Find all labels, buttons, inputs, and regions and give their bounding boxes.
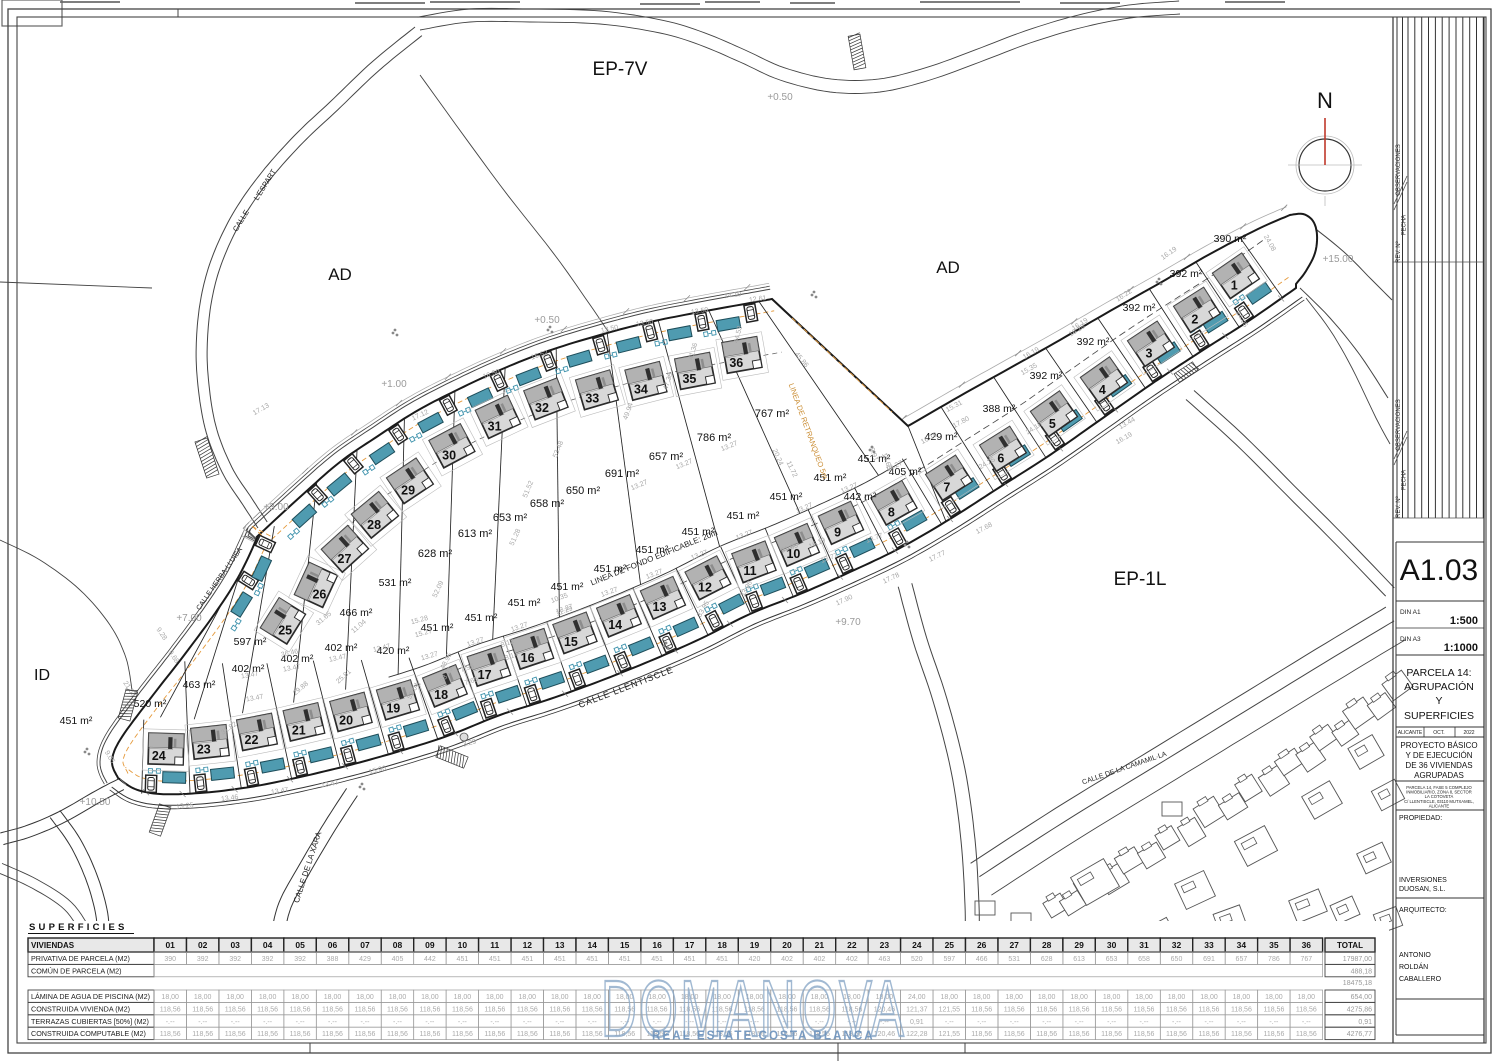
svg-text:-.--: -.--: [555, 1019, 565, 1026]
svg-text:118,56: 118,56: [322, 1006, 343, 1013]
svg-text:-.--: -.--: [328, 1019, 338, 1026]
svg-text:118,56: 118,56: [1166, 1031, 1187, 1038]
svg-text:21: 21: [292, 723, 306, 737]
svg-text:691: 691: [1203, 956, 1215, 963]
svg-text:21: 21: [815, 940, 825, 950]
svg-text:767: 767: [1300, 956, 1312, 963]
svg-text:118,56: 118,56: [1101, 1031, 1122, 1038]
svg-text:EP-7V: EP-7V: [593, 59, 648, 80]
svg-text:-.--: -.--: [1237, 1019, 1247, 1026]
svg-text:613 m²: 613 m²: [458, 528, 493, 540]
svg-text:402: 402: [814, 956, 826, 963]
svg-text:597: 597: [943, 956, 955, 963]
svg-text:PROYECTO BÁSICO: PROYECTO BÁSICO: [1400, 741, 1477, 750]
svg-text:402: 402: [781, 956, 793, 963]
svg-text:18,00: 18,00: [389, 994, 407, 1001]
svg-text:TOTAL: TOTAL: [1337, 941, 1363, 950]
svg-text:118,56: 118,56: [1069, 1006, 1090, 1013]
svg-text:25: 25: [278, 624, 292, 638]
svg-text:18,00: 18,00: [551, 994, 569, 1001]
svg-text:4276,77: 4276,77: [1347, 1031, 1372, 1038]
svg-text:29: 29: [401, 484, 415, 498]
svg-text:CABALLERO: CABALLERO: [1399, 976, 1442, 983]
svg-text:24: 24: [912, 940, 922, 950]
svg-text:420: 420: [749, 956, 761, 963]
svg-text:DIN A3: DIN A3: [1400, 636, 1421, 643]
svg-text:-.--: -.--: [361, 1019, 371, 1026]
svg-text:24: 24: [152, 749, 166, 763]
svg-text:32: 32: [535, 401, 549, 415]
svg-text:VIVIENDAS: VIVIENDAS: [31, 941, 75, 950]
svg-text:118,56: 118,56: [1004, 1006, 1025, 1013]
svg-text:-.--: -.--: [1172, 1019, 1182, 1026]
svg-text:463 m²: 463 m²: [183, 679, 216, 691]
svg-text:ARQUITECTO:: ARQUITECTO:: [1399, 907, 1447, 914]
svg-text:12: 12: [698, 580, 712, 594]
svg-text:392: 392: [262, 956, 274, 963]
svg-text:CONSTRUIDA VIVIENDA (M2): CONSTRUIDA VIVIENDA (M2): [31, 1004, 130, 1013]
svg-text:390 m²: 390 m²: [1214, 233, 1247, 245]
svg-text:118,56: 118,56: [225, 1031, 246, 1038]
svg-text:2: 2: [1191, 313, 1198, 327]
svg-text:392: 392: [197, 956, 209, 963]
svg-text:118,56: 118,56: [452, 1031, 473, 1038]
svg-text:09: 09: [425, 940, 435, 950]
svg-text:463: 463: [879, 956, 891, 963]
svg-text:REV. Nº: REV. Nº: [1395, 495, 1402, 517]
svg-text:18,00: 18,00: [1233, 994, 1251, 1001]
svg-text:18475,18: 18475,18: [1343, 980, 1372, 987]
svg-text:653 m²: 653 m²: [493, 512, 528, 524]
svg-text:18,00: 18,00: [324, 994, 342, 1001]
svg-text:442: 442: [424, 956, 436, 963]
svg-text:18,00: 18,00: [583, 994, 601, 1001]
svg-text:-.--: -.--: [945, 1019, 955, 1026]
svg-text:-.--: -.--: [263, 1019, 273, 1026]
svg-text:118,56: 118,56: [1134, 1006, 1155, 1013]
svg-text:451: 451: [684, 956, 696, 963]
svg-text:SUPERFICIES: SUPERFICIES: [1404, 710, 1474, 722]
svg-text:691 m²: 691 m²: [605, 468, 640, 480]
svg-text:-.--: -.--: [1010, 1019, 1020, 1026]
svg-text:PARCELA 14:: PARCELA 14:: [1406, 667, 1471, 679]
svg-text:Y: Y: [1435, 695, 1442, 707]
svg-text:451: 451: [554, 956, 566, 963]
svg-text:DIN A1: DIN A1: [1400, 609, 1421, 616]
svg-text:392 m²: 392 m²: [1030, 370, 1063, 382]
svg-text:REV. Nº: REV. Nº: [1395, 240, 1402, 262]
svg-text:118,56: 118,56: [1263, 1031, 1284, 1038]
svg-text:118,56: 118,56: [971, 1006, 992, 1013]
svg-text:COMÚN DE PARCELA (M2): COMÚN DE PARCELA (M2): [31, 966, 122, 975]
svg-text:27: 27: [338, 552, 352, 566]
svg-text:11: 11: [743, 564, 756, 578]
svg-text:18,00: 18,00: [1168, 994, 1186, 1001]
svg-text:22: 22: [245, 733, 259, 747]
svg-text:FECHA: FECHA: [1402, 215, 1408, 235]
svg-text:392 m²: 392 m²: [1123, 302, 1156, 314]
svg-text:31: 31: [488, 419, 502, 433]
svg-text:+0.50: +0.50: [534, 315, 560, 326]
svg-text:+10.50: +10.50: [80, 797, 111, 808]
svg-text:451 m²: 451 m²: [727, 510, 760, 522]
svg-text:31: 31: [1139, 940, 1149, 950]
svg-text:118,56: 118,56: [517, 1006, 538, 1013]
svg-text:30: 30: [1107, 940, 1117, 950]
svg-text:12: 12: [523, 940, 533, 950]
svg-text:-.--: -.--: [1075, 1019, 1085, 1026]
svg-text:16: 16: [652, 940, 662, 950]
svg-text:118,56: 118,56: [484, 1006, 505, 1013]
svg-text:392 m²: 392 m²: [1170, 268, 1203, 280]
svg-text:531 m²: 531 m²: [379, 577, 412, 589]
svg-text:18: 18: [434, 688, 448, 702]
svg-text:-.--: -.--: [1107, 1019, 1117, 1026]
svg-text:118,56: 118,56: [1199, 1006, 1220, 1013]
svg-text:628 m²: 628 m²: [418, 548, 453, 560]
svg-text:118,56: 118,56: [192, 1006, 213, 1013]
svg-text:27: 27: [1009, 940, 1019, 950]
svg-text:451: 451: [651, 956, 663, 963]
svg-text:786 m²: 786 m²: [697, 432, 732, 444]
svg-text:N: N: [1317, 88, 1333, 113]
svg-text:18,00: 18,00: [259, 994, 277, 1001]
svg-text:11: 11: [490, 940, 499, 950]
svg-text:451: 451: [586, 956, 598, 963]
svg-text:19: 19: [750, 940, 760, 950]
svg-text:34: 34: [1237, 940, 1247, 950]
svg-text:19: 19: [386, 702, 400, 716]
svg-text:657 m²: 657 m²: [649, 451, 684, 463]
svg-text:06: 06: [328, 940, 338, 950]
svg-text:118,56: 118,56: [582, 1006, 603, 1013]
svg-text:ALICANTE: ALICANTE: [1398, 730, 1423, 736]
svg-text:118,56: 118,56: [452, 1006, 473, 1013]
svg-text:35: 35: [1269, 940, 1279, 950]
svg-text:8: 8: [888, 506, 895, 520]
svg-text:+3.00: +3.00: [263, 502, 289, 513]
svg-text:118,56: 118,56: [1296, 1031, 1317, 1038]
svg-text:18,00: 18,00: [486, 994, 504, 1001]
svg-text:18,00: 18,00: [941, 994, 959, 1001]
svg-text:118,56: 118,56: [419, 1006, 440, 1013]
svg-text:118,56: 118,56: [1036, 1006, 1057, 1013]
svg-text:25: 25: [945, 940, 955, 950]
svg-text:488,18: 488,18: [1351, 968, 1373, 975]
svg-text:118,56: 118,56: [1036, 1031, 1057, 1038]
svg-text:653: 653: [1106, 956, 1118, 963]
svg-text:-.--: -.--: [393, 1019, 403, 1026]
svg-text:451: 451: [457, 956, 469, 963]
svg-text:08: 08: [393, 940, 403, 950]
svg-text:118,56: 118,56: [257, 1031, 278, 1038]
svg-text:PRIVATIVA DE PARCELA (M2): PRIVATIVA DE PARCELA (M2): [31, 954, 130, 963]
svg-text:118,56: 118,56: [419, 1031, 440, 1038]
svg-text:17: 17: [478, 668, 492, 682]
svg-text:10: 10: [458, 940, 468, 950]
svg-text:+15.00: +15.00: [1323, 254, 1354, 265]
svg-text:118,56: 118,56: [1231, 1031, 1252, 1038]
svg-text:REAL ESTATE COSTA BLANCA: REAL ESTATE COSTA BLANCA: [652, 1028, 875, 1042]
svg-text:02: 02: [198, 940, 208, 950]
svg-text:30: 30: [442, 449, 456, 463]
svg-text:INVERSIONES: INVERSIONES: [1399, 877, 1447, 884]
svg-text:32: 32: [1172, 940, 1182, 950]
svg-text:118,56: 118,56: [322, 1031, 343, 1038]
svg-text:392: 392: [229, 956, 241, 963]
svg-text:-.--: -.--: [977, 1019, 987, 1026]
svg-text:451 m²: 451 m²: [508, 597, 541, 609]
svg-text:OCT.: OCT.: [1433, 730, 1444, 736]
svg-text:18,00: 18,00: [291, 994, 309, 1001]
svg-text:-.--: -.--: [425, 1019, 435, 1026]
svg-text:-.--: -.--: [1140, 1019, 1150, 1026]
svg-text:18,00: 18,00: [226, 994, 244, 1001]
svg-text:18,00: 18,00: [973, 994, 991, 1001]
svg-text:Y DE EJECUCIÓN: Y DE EJECUCIÓN: [1406, 751, 1473, 760]
svg-text:451 m²: 451 m²: [60, 715, 93, 727]
svg-text:388 m²: 388 m²: [983, 403, 1016, 415]
svg-text:18,00: 18,00: [194, 994, 212, 1001]
svg-text:18: 18: [717, 940, 727, 950]
svg-text:23: 23: [197, 743, 211, 757]
svg-text:121,37: 121,37: [906, 1006, 928, 1013]
svg-text:SUPERFICIES: SUPERFICIES: [29, 922, 128, 933]
svg-text:118,56: 118,56: [1069, 1031, 1090, 1038]
svg-text:-.--: -.--: [588, 1019, 598, 1026]
svg-text:26: 26: [312, 587, 326, 601]
svg-text:-.--: -.--: [296, 1019, 306, 1026]
svg-text:451: 451: [489, 956, 501, 963]
svg-text:7: 7: [943, 481, 950, 495]
svg-text:1: 1: [1231, 279, 1238, 293]
svg-text:07: 07: [360, 940, 370, 950]
svg-text:118,56: 118,56: [1134, 1031, 1155, 1038]
svg-text:29: 29: [1074, 940, 1084, 950]
svg-text:-.--: -.--: [458, 1019, 468, 1026]
svg-text:-.--: -.--: [1269, 1019, 1279, 1026]
svg-text:121,55: 121,55: [939, 1006, 961, 1013]
svg-text:628: 628: [1041, 956, 1053, 963]
svg-text:442 m²: 442 m²: [844, 491, 877, 503]
svg-text:-.--: -.--: [1042, 1019, 1052, 1026]
svg-text:18,00: 18,00: [161, 994, 179, 1001]
svg-text:15: 15: [620, 940, 630, 950]
svg-text:451: 451: [521, 956, 533, 963]
svg-text:-.--: -.--: [231, 1019, 241, 1026]
svg-text:392: 392: [294, 956, 306, 963]
svg-text:429: 429: [359, 956, 371, 963]
svg-text:20: 20: [782, 940, 792, 950]
svg-text:20: 20: [339, 714, 353, 728]
svg-text:118,56: 118,56: [290, 1006, 311, 1013]
svg-text:16: 16: [521, 651, 535, 665]
svg-text:451 m²: 451 m²: [814, 472, 847, 484]
svg-text:AGRUPADAS: AGRUPADAS: [1414, 771, 1464, 780]
svg-text:DUOSAN, S.L.: DUOSAN, S.L.: [1399, 886, 1445, 893]
svg-text:17987,00: 17987,00: [1343, 956, 1372, 963]
svg-text:-.--: -.--: [490, 1019, 500, 1026]
svg-text:451: 451: [619, 956, 631, 963]
svg-text:118,56: 118,56: [355, 1031, 376, 1038]
svg-text:TERRAZAS CUBIERTAS [50%] (M: TERRAZAS CUBIERTAS [50%] (M2): [31, 1017, 149, 1026]
svg-text:597 m²: 597 m²: [234, 636, 267, 648]
svg-text:DE 36 VIVIENDAS: DE 36 VIVIENDAS: [1405, 761, 1472, 770]
svg-text:1:1000: 1:1000: [1444, 642, 1478, 654]
svg-text:14: 14: [587, 940, 597, 950]
svg-text:3: 3: [1146, 347, 1153, 361]
svg-text:18,00: 18,00: [356, 994, 374, 1001]
svg-text:392 m²: 392 m²: [1077, 336, 1110, 348]
svg-text:466 m²: 466 m²: [340, 607, 373, 619]
svg-text:18,00: 18,00: [1038, 994, 1056, 1001]
svg-text:388: 388: [327, 956, 339, 963]
svg-text:-.--: -.--: [1205, 1019, 1215, 1026]
svg-text:34: 34: [634, 383, 648, 397]
svg-text:118,56: 118,56: [160, 1031, 181, 1038]
svg-text:18,00: 18,00: [1103, 994, 1121, 1001]
svg-text:33: 33: [1204, 940, 1214, 950]
svg-text:A1.03: A1.03: [1400, 554, 1478, 587]
svg-text:1:500: 1:500: [1450, 615, 1478, 627]
svg-text:118,56: 118,56: [484, 1031, 505, 1038]
svg-text:0,91: 0,91: [910, 1019, 924, 1026]
svg-text:118,56: 118,56: [257, 1006, 278, 1013]
svg-text:AD: AD: [936, 258, 960, 277]
svg-text:118,56: 118,56: [355, 1006, 376, 1013]
svg-text:17: 17: [685, 940, 695, 950]
svg-text:03: 03: [230, 940, 240, 950]
svg-text:650 m²: 650 m²: [566, 485, 601, 497]
svg-text:28: 28: [1042, 940, 1052, 950]
svg-text:466: 466: [976, 956, 988, 963]
svg-text:118,56: 118,56: [517, 1031, 538, 1038]
svg-text:118,56: 118,56: [160, 1006, 181, 1013]
svg-text:24,00: 24,00: [908, 994, 926, 1001]
svg-text:ROLDÁN: ROLDÁN: [1399, 962, 1428, 971]
svg-text:118,56: 118,56: [290, 1031, 311, 1038]
svg-text:13: 13: [555, 940, 565, 950]
svg-text:35: 35: [682, 372, 696, 386]
svg-text:658 m²: 658 m²: [530, 498, 565, 510]
svg-text:18,00: 18,00: [1200, 994, 1218, 1001]
svg-text:ALICANTE: ALICANTE: [1429, 803, 1450, 808]
svg-text:121,55: 121,55: [939, 1031, 961, 1038]
svg-text:658: 658: [1138, 956, 1150, 963]
svg-text:118,56: 118,56: [1101, 1006, 1122, 1013]
svg-text:18,00: 18,00: [1265, 994, 1283, 1001]
svg-text:18,00: 18,00: [1070, 994, 1088, 1001]
svg-text:14: 14: [608, 618, 622, 632]
svg-text:04: 04: [263, 940, 273, 950]
svg-text:657: 657: [1236, 956, 1248, 963]
svg-text:650: 650: [1171, 956, 1183, 963]
svg-text:118,56: 118,56: [971, 1031, 992, 1038]
svg-text:118,56: 118,56: [1296, 1006, 1317, 1013]
svg-text:-.--: -.--: [198, 1019, 208, 1026]
svg-text:FECHA: FECHA: [1402, 470, 1408, 490]
svg-text:ANTONIO: ANTONIO: [1399, 952, 1431, 959]
svg-text:+0.50: +0.50: [767, 92, 793, 103]
svg-text:451: 451: [716, 956, 728, 963]
svg-text:451 m²: 451 m²: [551, 581, 584, 593]
svg-text:2022: 2022: [1463, 730, 1474, 736]
svg-text:+7.00: +7.00: [176, 613, 202, 624]
svg-text:23: 23: [880, 940, 890, 950]
svg-text:405: 405: [392, 956, 404, 963]
svg-text:AGRUPACIÓN: AGRUPACIÓN: [1404, 680, 1474, 693]
svg-text:451 m²: 451 m²: [465, 612, 498, 624]
svg-text:118,56: 118,56: [1004, 1031, 1025, 1038]
svg-text:18,00: 18,00: [1298, 994, 1316, 1001]
svg-text:26: 26: [977, 940, 987, 950]
svg-text:28: 28: [367, 518, 381, 532]
svg-text:122,28: 122,28: [906, 1031, 928, 1038]
svg-text:33: 33: [585, 392, 599, 406]
svg-text:390: 390: [164, 956, 176, 963]
svg-text:CONSTRUIDA COMPUTABLE (M2): CONSTRUIDA COMPUTABLE (M2): [31, 1029, 146, 1038]
svg-text:15: 15: [564, 635, 578, 649]
svg-text:451 m²: 451 m²: [770, 491, 803, 503]
svg-text:PROPIEDAD:: PROPIEDAD:: [1399, 815, 1442, 822]
svg-text:9: 9: [834, 525, 841, 539]
svg-text:520: 520: [911, 956, 923, 963]
svg-text:118,56: 118,56: [582, 1031, 603, 1038]
svg-text:118,56: 118,56: [387, 1006, 408, 1013]
svg-text:36: 36: [729, 356, 743, 370]
svg-text:402 m²: 402 m²: [325, 642, 358, 654]
svg-text:118,56: 118,56: [192, 1031, 213, 1038]
svg-text:13: 13: [653, 600, 667, 614]
svg-text:118,56: 118,56: [1231, 1006, 1252, 1013]
svg-text:+9.70: +9.70: [835, 617, 861, 628]
svg-text:18,00: 18,00: [1135, 994, 1153, 1001]
svg-text:-.--: -.--: [523, 1019, 533, 1026]
svg-text:402: 402: [846, 956, 858, 963]
svg-text:118,56: 118,56: [387, 1031, 408, 1038]
svg-text:+1.00: +1.00: [381, 379, 407, 390]
svg-text:ID: ID: [34, 667, 50, 684]
svg-text:118,56: 118,56: [549, 1031, 570, 1038]
svg-text:EP-1L: EP-1L: [1114, 569, 1167, 590]
svg-text:118,56: 118,56: [225, 1006, 246, 1013]
svg-text:4: 4: [1099, 383, 1106, 397]
svg-text:18,00: 18,00: [454, 994, 472, 1001]
svg-text:-.--: -.--: [166, 1019, 176, 1026]
svg-text:118,56: 118,56: [549, 1006, 570, 1013]
svg-text:4275,86: 4275,86: [1347, 1006, 1372, 1013]
svg-text:0,91: 0,91: [1358, 1019, 1372, 1026]
svg-text:01: 01: [165, 940, 175, 950]
svg-text:-.--: -.--: [1302, 1019, 1312, 1026]
svg-text:18,00: 18,00: [421, 994, 439, 1001]
svg-text:520 m²: 520 m²: [134, 698, 167, 710]
svg-text:5: 5: [1049, 417, 1056, 431]
svg-text:AD: AD: [328, 265, 352, 284]
svg-text:36: 36: [1302, 940, 1312, 950]
svg-text:LÁMINA DE AGUA DE PISCINA: LÁMINA DE AGUA DE PISCINA (M2): [31, 992, 150, 1001]
svg-text:531: 531: [1008, 956, 1020, 963]
svg-text:118,56: 118,56: [1263, 1006, 1284, 1013]
svg-text:118,56: 118,56: [1199, 1031, 1220, 1038]
svg-text:18,00: 18,00: [1005, 994, 1023, 1001]
svg-text:786: 786: [1268, 956, 1280, 963]
svg-text:767 m²: 767 m²: [755, 408, 790, 420]
svg-text:6: 6: [997, 452, 1004, 466]
svg-text:18,00: 18,00: [519, 994, 537, 1001]
svg-text:613: 613: [1073, 956, 1085, 963]
svg-text:05: 05: [295, 940, 305, 950]
